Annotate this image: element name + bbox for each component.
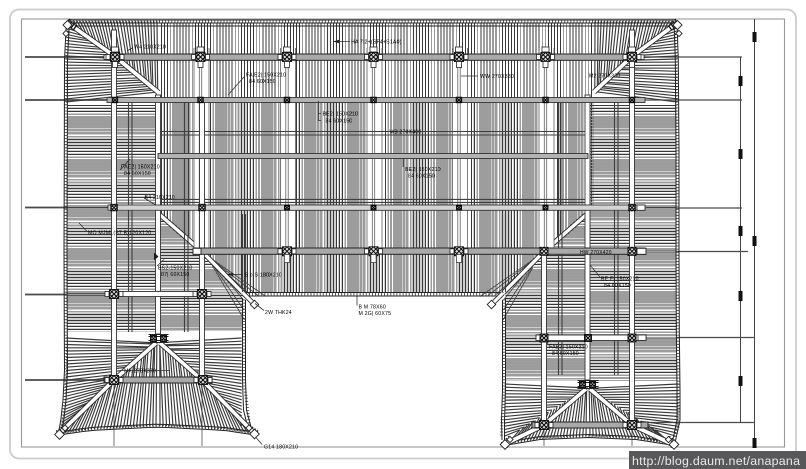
svg-text:FA E2| 150X210: FA E2| 150X210 xyxy=(246,73,286,79)
svg-text:http://blog.daum.net/anapana: http://blog.daum.net/anapana xyxy=(632,454,800,468)
svg-text:MX 270X370: MX 270X370 xyxy=(124,369,156,375)
svg-text:W4 210X210: W4 210X210 xyxy=(134,45,166,51)
svg-text:B4 210X210: B4 210X210 xyxy=(145,195,176,201)
svg-text:BS2-150X210: BS2-150X210 xyxy=(158,266,193,272)
svg-text:BE F| 150X210: BE F| 150X210 xyxy=(601,277,639,283)
svg-text:G14 180X210: G14 180X210 xyxy=(264,445,298,451)
svg-text:BE2| 150X210: BE2| 150X210 xyxy=(405,167,441,173)
svg-text:87| 60X150: 87| 60X150 xyxy=(161,272,189,278)
svg-text:84 60X150: 84 60X150 xyxy=(408,174,435,180)
svg-text:S o S 180X210: S o S 180X210 xyxy=(245,273,283,279)
svg-text:84 60X150: 84 60X150 xyxy=(552,351,579,357)
svg-text:84 60X150: 84 60X150 xyxy=(249,79,276,85)
svg-text:84 60X150: 84 60X150 xyxy=(326,119,353,125)
svg-text:FAE2| 150X210: FAE2| 150X210 xyxy=(121,165,160,171)
svg-text:WW 270X330: WW 270X330 xyxy=(480,74,514,80)
svg-text:84 60X150: 84 60X150 xyxy=(124,171,151,177)
svg-text:B M 78X60: B M 78X60 xyxy=(359,305,386,311)
svg-text:BE2| 150X210: BE2| 150X210 xyxy=(323,112,359,118)
svg-text:M2 270X330: M2 270X330 xyxy=(589,74,620,80)
svg-text:MO MJML(S7 B)120X120: MO MJML(S7 B)120X120 xyxy=(88,231,151,237)
svg-text:HW 270X420: HW 270X420 xyxy=(580,250,612,256)
svg-text:W8 270X400: W8 270X400 xyxy=(390,130,422,136)
svg-text:2W THK24: 2W THK24 xyxy=(265,310,292,316)
svg-text:84 60X150: 84 60X150 xyxy=(604,283,631,289)
svg-text:FAE2| 150X210: FAE2| 150X210 xyxy=(549,345,588,351)
svg-text:M 2G| 60X75: M 2G| 60X75 xyxy=(359,311,392,317)
svg-text:HA 7|2+(SF4+S1A0): HA 7|2+(SF4+S1A0) xyxy=(351,40,402,46)
